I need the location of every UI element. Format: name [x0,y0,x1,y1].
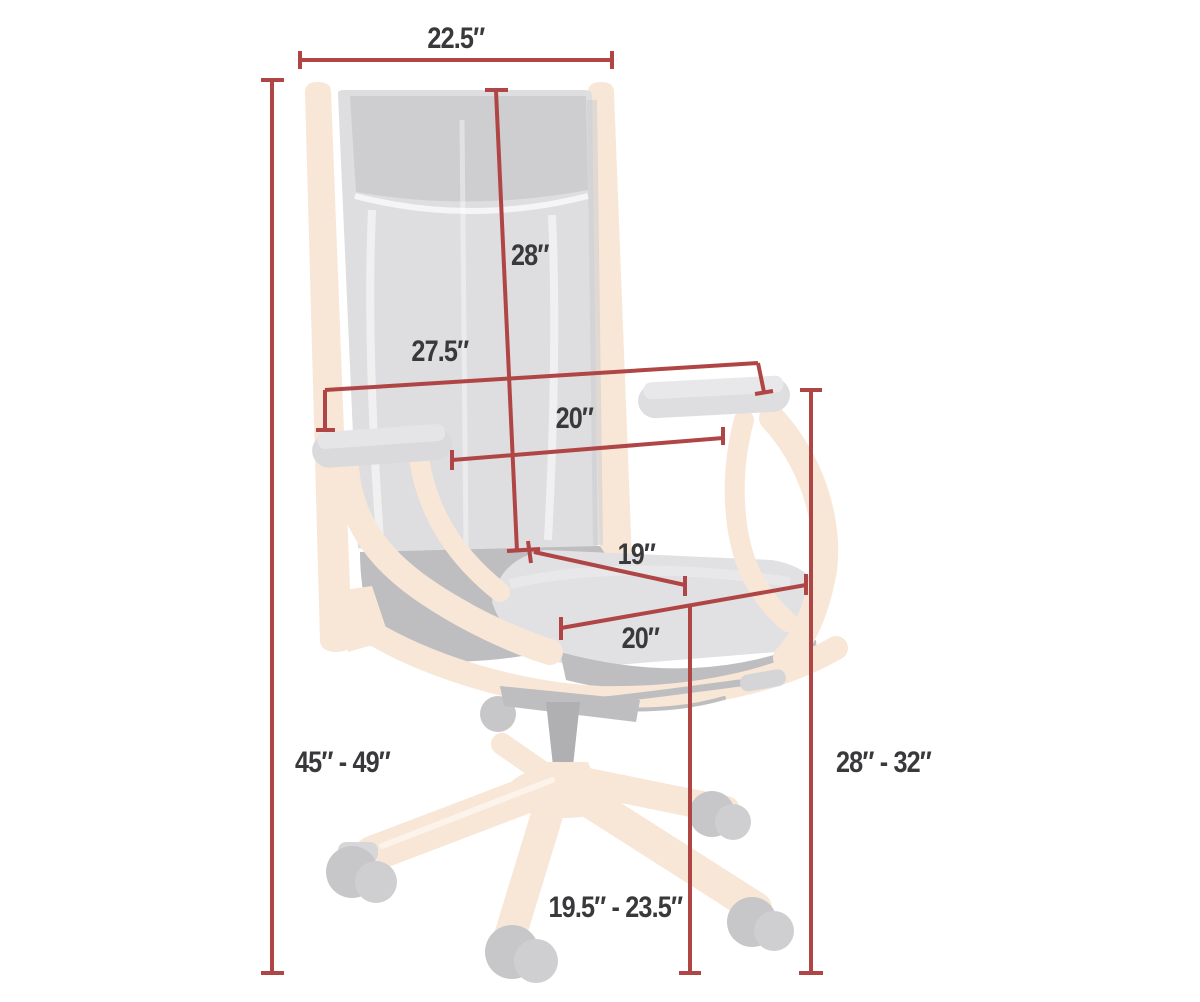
dim-back-height [485,90,540,563]
label-text: 20″ [555,404,593,434]
dim-seat-height [679,606,701,973]
dim-arm-height [799,390,823,973]
label-overall-arm-width: 27.5″ [386,337,494,367]
label-text: 27.5″ [412,337,469,367]
label-back-height: 28″ [511,241,556,271]
dim-overall-height [261,80,284,973]
label-seat-width: 20″ [602,624,678,654]
label-overall-height: 45″ - 49″ [295,748,408,778]
label-text: 45″ - 49″ [295,748,390,778]
dim-leg [758,363,764,392]
dim-cap [528,541,531,563]
label-text: 22.5″ [428,24,485,54]
label-text: 20″ [621,624,659,654]
label-text: 19.5″ - 23.5″ [548,893,682,923]
label-seat-depth: 19″ [600,540,672,570]
label-seat-height: 19.5″ - 23.5″ [508,893,682,923]
dim-line [496,91,517,551]
dimension-lines [0,0,1200,1002]
dim-cap [755,391,773,394]
label-back-width: 22.5″ [396,24,516,54]
label-between-arms: 20″ [534,404,614,434]
label-text: 19″ [617,540,655,570]
dim-line [325,363,758,390]
label-arm-height: 28″ - 32″ [836,748,949,778]
label-text: 28″ [511,241,549,271]
label-text: 28″ - 32″ [836,748,931,778]
dim-line [452,438,723,460]
chair-dimensions-diagram: 22.5″ 28″ 27.5″ 20″ 19″ 20″ 45″ - 49″ 28… [0,0,1200,1002]
